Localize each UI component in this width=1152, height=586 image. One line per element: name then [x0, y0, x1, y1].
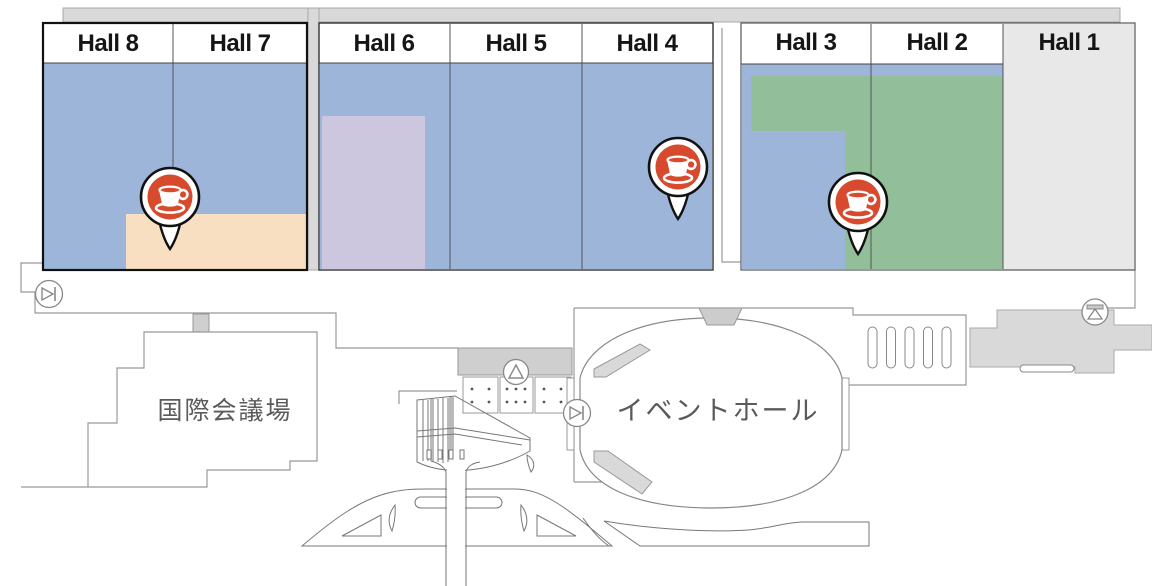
north-wall-band: [63, 8, 1120, 22]
zone-peach-hall7: [126, 214, 306, 269]
hall-2-label: Hall 2: [906, 29, 967, 56]
play-bar-circle-icon-west: [36, 281, 63, 308]
hall-6-label: Hall 6: [353, 30, 414, 57]
escalator-tooth: [460, 450, 464, 459]
hall-4-label: Hall 4: [616, 30, 678, 57]
escalator-bar: [449, 397, 453, 457]
conference-hall-label: 国際会議場: [157, 397, 292, 425]
play-bar-circle-icon-center: [564, 400, 591, 427]
escalator-cutout: [527, 455, 534, 472]
hall-5-label: Hall 5: [485, 30, 546, 57]
hall-gap-line: [722, 28, 741, 262]
event-hall-label: イベントホール: [617, 396, 820, 426]
louver-slots: [868, 327, 951, 368]
east-entrance-plaza: [970, 310, 1152, 373]
conference-connector: [193, 314, 209, 333]
hall-block-east: Hall 3 Hall 2 Hall 1: [741, 23, 1135, 270]
escalator-tooth: [438, 450, 442, 459]
floor-map-svg: 国際会議場: [0, 0, 1152, 586]
zone-lavender-hall6: [322, 116, 425, 269]
hall-block-center: Hall 6 Hall 5 Hall 4: [319, 23, 713, 270]
funnel-circle-icon: [1082, 299, 1108, 325]
triangle-circle-icon: [504, 360, 529, 385]
hall-gap-corridor: [308, 8, 319, 270]
hall-7-label: Hall 7: [209, 30, 270, 57]
hall-3-label: Hall 3: [775, 29, 836, 56]
esplanade-east: [604, 521, 869, 546]
escalator-tooth: [427, 450, 431, 459]
east-entrance-door: [1020, 365, 1074, 372]
event-hall: イベントホール: [567, 308, 849, 508]
hall-8-label: Hall 8: [77, 30, 138, 57]
walkway-fill: [447, 468, 465, 586]
floor-map: 国際会議場: [0, 0, 1152, 586]
east-wall: [1108, 270, 1135, 308]
hall-1-label: Hall 1: [1038, 29, 1099, 56]
elevator-box: [463, 377, 498, 413]
escalator-tooth: [449, 450, 453, 459]
event-hall-north-entrance: [699, 308, 742, 325]
event-hall-east-door: [842, 378, 849, 450]
hall-1-closed-zone: [1003, 24, 1134, 270]
